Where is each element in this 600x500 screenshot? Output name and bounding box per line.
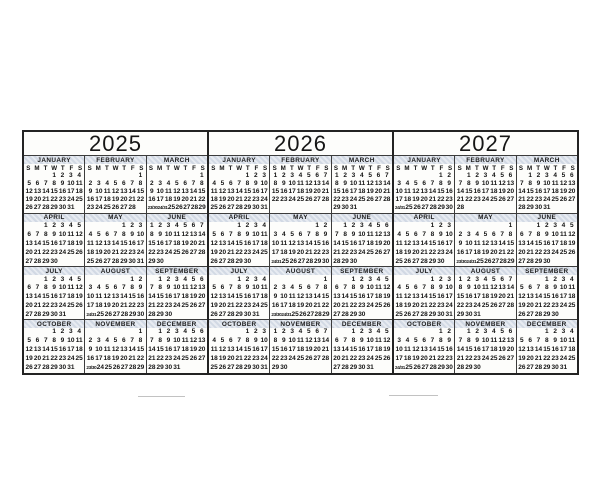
month-name: SEPTEMBER bbox=[517, 267, 577, 275]
week-row: 13141516171819 bbox=[518, 240, 576, 249]
day-cell: 14 bbox=[333, 241, 341, 248]
day-cell: 21 bbox=[506, 294, 514, 301]
day-cell: 2 bbox=[437, 223, 445, 230]
day-cell: 2 bbox=[358, 329, 366, 336]
day-cell: 19 bbox=[218, 356, 226, 363]
weekday-letter: W bbox=[235, 165, 244, 172]
month-name: MARCH bbox=[147, 156, 207, 164]
day-cell: 22 bbox=[428, 303, 436, 310]
day-cell: 3 bbox=[173, 329, 181, 336]
day-cell: 21 bbox=[341, 303, 349, 310]
day-cell: 11 bbox=[164, 189, 172, 196]
week-row: 282930 bbox=[456, 364, 514, 373]
day-cell: 27 bbox=[183, 205, 191, 212]
day-cell: 14 bbox=[227, 241, 235, 248]
day-cell: 4 bbox=[260, 223, 268, 230]
week-row: 293031 bbox=[333, 204, 391, 212]
day-cell: 4 bbox=[103, 338, 111, 345]
weekday-letter: F bbox=[128, 165, 137, 172]
day-cell: 15 bbox=[235, 241, 243, 248]
day-cell: 2 bbox=[86, 181, 94, 188]
weekday-letter: F bbox=[560, 165, 569, 172]
day-cell: 8 bbox=[50, 181, 58, 188]
day-cell: 4 bbox=[296, 329, 304, 336]
day-cell: 19 bbox=[374, 241, 382, 248]
day-cell: 27 bbox=[526, 312, 534, 319]
weekday-letter: S bbox=[517, 165, 526, 172]
day-cell: 4 bbox=[95, 285, 103, 292]
day-cell: 11 bbox=[95, 294, 103, 301]
day-cell: 25 bbox=[210, 205, 218, 212]
day-cell: 11 bbox=[490, 181, 498, 188]
weekday-row: SMTWTFS bbox=[332, 164, 392, 172]
day-cell: 25 bbox=[281, 259, 289, 266]
day-cell: 3 bbox=[395, 338, 403, 345]
day-cell: 6 bbox=[490, 232, 498, 239]
month-name: JULY bbox=[394, 267, 454, 275]
day-cell: 19 bbox=[181, 241, 189, 248]
day-cell: 29 bbox=[465, 365, 473, 372]
week-row: 15161718192021 bbox=[271, 346, 329, 355]
day-cell: 7 bbox=[428, 181, 436, 188]
day-cell: 1 bbox=[136, 173, 144, 180]
day-cell: 22 bbox=[42, 303, 50, 310]
day-cell: 13 bbox=[120, 189, 128, 196]
day-cell: 1 bbox=[543, 329, 551, 336]
day-cell: 26 bbox=[484, 259, 492, 266]
day-cell: 9 bbox=[543, 232, 551, 239]
day-cell: 23 bbox=[445, 197, 453, 204]
weekday-letter: T bbox=[58, 165, 67, 172]
day-cell: 9 bbox=[445, 338, 453, 345]
day-cell: 7 bbox=[498, 232, 506, 239]
day-cell: 26 bbox=[25, 365, 33, 372]
week-row: 567891011 bbox=[518, 337, 576, 346]
day-cell: 25 bbox=[67, 303, 75, 310]
day-cell: 21 bbox=[383, 189, 391, 196]
day-cell: 17 bbox=[260, 347, 268, 354]
day-cell: 26 bbox=[413, 205, 421, 212]
day-cell: 28 bbox=[42, 205, 50, 212]
day-cell: 29 bbox=[271, 365, 279, 372]
day-cell: 29 bbox=[156, 312, 164, 319]
weeks: 1234567891011121314151617181920212223242… bbox=[394, 275, 454, 319]
day-cell: 17 bbox=[164, 241, 172, 248]
week-row: 19202122232425 bbox=[518, 302, 576, 311]
day-cell: 29 bbox=[333, 205, 341, 212]
month-name: SEPTEMBER bbox=[147, 267, 207, 275]
day-cell: 10 bbox=[366, 285, 374, 292]
week-row: 16171819202122 bbox=[271, 302, 329, 311]
week-row: 891011121314 bbox=[271, 337, 329, 346]
day-cell: 6 bbox=[25, 232, 33, 239]
month-name: AUGUST bbox=[85, 267, 145, 275]
day-cell: 5 bbox=[210, 232, 218, 239]
day-cell: 16 bbox=[551, 294, 559, 301]
day-cell: 18 bbox=[358, 189, 366, 196]
weekday-letter: M bbox=[94, 165, 103, 172]
day-cell: 11 bbox=[403, 347, 411, 354]
day-cell: 7 bbox=[189, 181, 197, 188]
week-row: 16171819202122 bbox=[148, 196, 206, 204]
week-row: 10111213141516 bbox=[395, 346, 453, 355]
day-cell: 10 bbox=[445, 285, 453, 292]
weekday-row: SMTWTFS bbox=[209, 164, 269, 172]
day-cell: 24/31 bbox=[395, 206, 405, 211]
week-row: 11121314151617 bbox=[210, 346, 268, 355]
day-cell: 14 bbox=[518, 189, 526, 196]
day-cell: 5 bbox=[481, 232, 489, 239]
month-march-2026: MARCH SMTWTFS 12345678910111213141516171… bbox=[332, 156, 392, 213]
day-cell: 27 bbox=[526, 365, 534, 372]
month-november-2027: NOVEMBER 1234567891011121314151617181920… bbox=[455, 320, 515, 373]
day-cell: 5 bbox=[218, 181, 226, 188]
day-cell: 4 bbox=[181, 277, 189, 284]
day-cell: 4 bbox=[260, 277, 268, 284]
day-cell: 25 bbox=[405, 365, 413, 372]
day-cell: 16 bbox=[551, 347, 559, 354]
day-cell: 19 bbox=[383, 294, 391, 301]
day-cell: 12 bbox=[189, 285, 197, 292]
day-cell: 18 bbox=[551, 189, 559, 196]
day-cell: 4 bbox=[490, 329, 498, 336]
day-cell: 4 bbox=[67, 223, 75, 230]
weeks: 1234567891011121314151617181920212223242… bbox=[85, 172, 145, 213]
day-cell: 3 bbox=[95, 181, 103, 188]
day-cell: 19 bbox=[383, 347, 391, 354]
day-cell: 14 bbox=[42, 189, 50, 196]
weekday-letter: T bbox=[120, 165, 129, 172]
day-cell: 26 bbox=[518, 365, 526, 372]
week-row: 9101112131415 bbox=[271, 293, 329, 302]
day-cell: 21 bbox=[456, 197, 464, 204]
week-row: 567891011 bbox=[210, 231, 268, 240]
day-cell: 31 bbox=[67, 365, 75, 372]
day-cell: 15 bbox=[120, 241, 128, 248]
day-cell: 30 bbox=[551, 365, 559, 372]
day-cell: 18 bbox=[173, 241, 181, 248]
day-cell: 2 bbox=[358, 277, 366, 284]
day-cell: 20 bbox=[33, 356, 41, 363]
day-cell: 19 bbox=[518, 303, 526, 310]
day-cell: 16 bbox=[50, 241, 58, 248]
day-cell: 20 bbox=[420, 197, 428, 204]
day-cell: 12 bbox=[374, 232, 382, 239]
day-cell: 22 bbox=[437, 356, 445, 363]
day-cell: 8 bbox=[148, 232, 156, 239]
day-cell: 25 bbox=[395, 259, 403, 266]
day-cell: 27 bbox=[227, 205, 235, 212]
day-cell: 4 bbox=[164, 181, 172, 188]
day-cell: 17 bbox=[173, 294, 181, 301]
day-cell: 12 bbox=[103, 294, 111, 301]
day-cell: 4 bbox=[75, 329, 83, 336]
weekday-row: SMTWTFS bbox=[394, 164, 454, 172]
day-cell: 25 bbox=[75, 356, 83, 363]
day-cell: 28 bbox=[341, 365, 349, 372]
week-row: 262728293031 bbox=[518, 364, 576, 373]
week-row: 12 bbox=[86, 275, 144, 284]
day-cell: 24 bbox=[445, 303, 453, 310]
week-row: 2345678 bbox=[148, 180, 206, 188]
weekday-letter: T bbox=[181, 165, 190, 172]
day-cell: 6 bbox=[120, 181, 128, 188]
day-cell: 28 bbox=[456, 205, 464, 212]
day-cell: 8 bbox=[156, 338, 164, 345]
day-cell: 17 bbox=[260, 189, 268, 196]
day-cell: 26 bbox=[383, 356, 391, 363]
day-cell: 21 bbox=[128, 356, 136, 363]
week-row: 2728293031 bbox=[333, 364, 391, 373]
day-cell: 23 bbox=[86, 205, 94, 212]
month-name: JUNE bbox=[517, 214, 577, 222]
day-cell: 10 bbox=[260, 338, 268, 345]
day-cell: 6 bbox=[25, 285, 33, 292]
day-cell: 30 bbox=[445, 205, 453, 212]
month-name: FEBRUARY bbox=[270, 156, 330, 164]
day-cell: 28 bbox=[305, 259, 313, 266]
day-cell: 25 bbox=[568, 356, 576, 363]
day-cell: 6 bbox=[313, 173, 321, 180]
day-cell: 14 bbox=[111, 241, 119, 248]
week-row: 3456789 bbox=[395, 337, 453, 346]
day-cell: 9 bbox=[358, 338, 366, 345]
day-cell: 5 bbox=[559, 173, 567, 180]
day-cell: 10 bbox=[95, 347, 103, 354]
day-cell: 21 bbox=[198, 241, 206, 248]
day-cell: 10 bbox=[58, 232, 66, 239]
day-cell: 4 bbox=[103, 181, 111, 188]
day-cell: 11 bbox=[358, 181, 366, 188]
day-cell: 26 bbox=[175, 205, 183, 212]
day-cell: 10 bbox=[86, 294, 94, 301]
day-cell: 21 bbox=[333, 250, 341, 257]
week-row: 12345 bbox=[25, 222, 83, 231]
weekday-letter: T bbox=[349, 165, 358, 172]
day-cell: 3 bbox=[58, 223, 66, 230]
week-row: 14151617181920 bbox=[148, 293, 206, 302]
day-cell: 24 bbox=[260, 356, 268, 363]
day-cell: 28 bbox=[321, 197, 329, 204]
day-cell: 9 bbox=[551, 285, 559, 292]
day-cell: 19 bbox=[25, 197, 33, 204]
day-cell: 23 bbox=[445, 356, 453, 363]
day-cell: 20 bbox=[412, 250, 420, 257]
day-cell: 1 bbox=[526, 173, 534, 180]
day-cell: 26 bbox=[218, 205, 226, 212]
day-cell: 22 bbox=[148, 250, 156, 257]
day-cell: 3 bbox=[358, 223, 366, 230]
day-cell: 12 bbox=[75, 232, 83, 239]
week-row: 567891011 bbox=[25, 337, 83, 346]
day-cell: 14 bbox=[428, 347, 436, 354]
day-cell: 7 bbox=[128, 181, 136, 188]
day-cell: 12 bbox=[173, 189, 181, 196]
day-cell: 11 bbox=[288, 294, 296, 301]
month-june-2027: JUNE 12345678910111213141516171819202122… bbox=[517, 214, 577, 267]
day-cell: 9 bbox=[164, 285, 172, 292]
day-cell: 26 bbox=[498, 197, 506, 204]
week-row: 2345678 bbox=[456, 231, 514, 240]
day-cell: 17 bbox=[95, 197, 103, 204]
week-row: 22232425262728 bbox=[333, 196, 391, 204]
month-november-2026: NOVEMBER 1234567891011121314151617181920… bbox=[270, 320, 330, 373]
day-cell: 11 bbox=[490, 338, 498, 345]
week-row: 20212223242526 bbox=[25, 302, 83, 311]
day-cell: 2 bbox=[50, 223, 58, 230]
day-cell: 28 bbox=[534, 312, 542, 319]
day-cell: 14 bbox=[498, 241, 506, 248]
day-cell: 30 bbox=[137, 312, 145, 319]
day-cell: 23 bbox=[136, 303, 144, 310]
week-row: 18192021222324 bbox=[86, 248, 144, 257]
weeks: 1234567891011121314151617181920212223/30… bbox=[85, 328, 145, 373]
day-cell: 7 bbox=[420, 232, 428, 239]
day-cell: 18 bbox=[395, 303, 403, 310]
week-row: 123456 bbox=[148, 328, 206, 337]
weeks: 1234567891011121314151617181920212223242… bbox=[147, 275, 207, 319]
day-cell: 17 bbox=[395, 356, 403, 363]
day-cell: 26 bbox=[189, 303, 197, 310]
month-february-2026: FEBRUARY SMTWTFS 12345678910111213141516… bbox=[270, 156, 330, 213]
day-cell: 2 bbox=[148, 181, 156, 188]
day-cell: 21 bbox=[235, 197, 243, 204]
day-cell: 26 bbox=[305, 197, 313, 204]
day-cell: 9 bbox=[473, 338, 481, 345]
month-december-2025: DECEMBER 1234567891011121314151617181920… bbox=[147, 320, 207, 373]
day-cell: 1 bbox=[42, 223, 50, 230]
day-cell: 10 bbox=[395, 347, 403, 354]
day-cell: 29 bbox=[437, 365, 445, 372]
month-name: APRIL bbox=[209, 214, 269, 222]
day-cell: 6 bbox=[305, 285, 313, 292]
day-cell: 10 bbox=[358, 232, 366, 239]
week-row: 28 bbox=[456, 204, 514, 212]
day-cell: 14 bbox=[506, 285, 514, 292]
day-cell: 29 bbox=[50, 365, 58, 372]
day-cell: 8 bbox=[156, 285, 164, 292]
day-cell: 24 bbox=[260, 197, 268, 204]
day-cell: 21 bbox=[189, 197, 197, 204]
day-cell: 16 bbox=[473, 189, 481, 196]
day-cell: 6 bbox=[198, 277, 206, 284]
weekday-letter: T bbox=[551, 165, 560, 172]
week-row: 3456789 bbox=[395, 180, 453, 188]
weeks: 1234567891011121314151617181920212223242… bbox=[24, 222, 84, 267]
day-cell: 29 bbox=[507, 259, 515, 266]
day-cell: 19 bbox=[288, 250, 296, 257]
day-cell: 27 bbox=[25, 312, 33, 319]
day-cell: 2 bbox=[243, 277, 251, 284]
day-cell: 11 bbox=[481, 285, 489, 292]
day-cell: 26 bbox=[366, 197, 374, 204]
weeks: 1234567891011121314151617181920212223242… bbox=[24, 275, 84, 319]
day-cell: 20 bbox=[568, 189, 576, 196]
day-cell: 18 bbox=[288, 303, 296, 310]
week-row: 78910111213 bbox=[148, 337, 206, 346]
day-cell: 22 bbox=[243, 197, 251, 204]
day-cell: 10 bbox=[473, 285, 481, 292]
day-cell: 11 bbox=[559, 232, 567, 239]
day-cell: 27 bbox=[313, 356, 321, 363]
week-row: 21222324252627 bbox=[518, 196, 576, 204]
day-cell: 30 bbox=[473, 365, 481, 372]
day-cell: 8 bbox=[271, 181, 279, 188]
day-cell: 23 bbox=[534, 197, 542, 204]
week-row: 23/3024/312526272829 bbox=[271, 310, 329, 319]
month-name: DECEMBER bbox=[332, 320, 392, 328]
week-row: 12131415161718 bbox=[518, 346, 576, 355]
day-cell: 27 bbox=[33, 205, 41, 212]
day-cell: 8 bbox=[42, 232, 50, 239]
day-cell: 30 bbox=[534, 205, 542, 212]
day-cell: 4 bbox=[395, 285, 403, 292]
day-cell: 23 bbox=[437, 303, 445, 310]
day-cell: 12 bbox=[498, 181, 506, 188]
day-cell: 24/31 bbox=[158, 206, 168, 211]
week-row: 1234567 bbox=[271, 172, 329, 180]
day-cell: 23 bbox=[164, 303, 172, 310]
day-cell: 30 bbox=[358, 365, 366, 372]
day-cell: 28 bbox=[129, 365, 137, 372]
week-row: 123456 bbox=[518, 172, 576, 180]
day-cell: 17 bbox=[445, 294, 453, 301]
day-cell: 2 bbox=[534, 173, 542, 180]
day-cell: 22 bbox=[271, 197, 279, 204]
day-cell: 25 bbox=[374, 356, 382, 363]
day-cell: 28 bbox=[383, 197, 391, 204]
week-row: 20212223242526 bbox=[25, 248, 83, 257]
day-cell: 10 bbox=[481, 181, 489, 188]
weekday-letter: W bbox=[543, 165, 552, 172]
day-cell: 7 bbox=[321, 173, 329, 180]
week-row: 123456 bbox=[333, 222, 391, 231]
day-cell: 19 bbox=[173, 197, 181, 204]
day-cell: 20 bbox=[526, 303, 534, 310]
month-name: FEBRUARY bbox=[455, 156, 515, 164]
day-cell: 13 bbox=[120, 347, 128, 354]
day-cell: 27 bbox=[333, 365, 341, 372]
day-cell: 27 bbox=[421, 365, 429, 372]
day-cell: 5 bbox=[75, 277, 83, 284]
day-cell: 5 bbox=[189, 329, 197, 336]
day-cell: 11 bbox=[473, 241, 481, 248]
day-cell: 7 bbox=[128, 338, 136, 345]
day-cell: 12 bbox=[366, 181, 374, 188]
day-cell: 9 bbox=[534, 181, 542, 188]
day-cell: 19 bbox=[498, 189, 506, 196]
weeks: 1234567891011121314151617181920212223242… bbox=[455, 328, 515, 373]
day-cell: 31 bbox=[173, 365, 181, 372]
day-cell: 14 bbox=[420, 241, 428, 248]
week-row: 123456 bbox=[456, 328, 514, 337]
day-cell: 29 bbox=[543, 312, 551, 319]
day-cell: 13 bbox=[333, 347, 341, 354]
day-cell: 30 bbox=[437, 259, 445, 266]
day-cell: 1 bbox=[543, 277, 551, 284]
day-cell: 7 bbox=[33, 285, 41, 292]
day-cell: 23/30 bbox=[86, 366, 96, 371]
day-cell: 30 bbox=[280, 365, 288, 372]
weekday-row: SMTWTFS bbox=[24, 164, 84, 172]
day-cell: 30 bbox=[358, 312, 366, 319]
day-cell: 8 bbox=[543, 285, 551, 292]
day-cell: 6 bbox=[189, 223, 197, 230]
day-cell: 6 bbox=[333, 285, 341, 292]
week-row: 18192021222324 bbox=[395, 302, 453, 311]
day-cell: 18 bbox=[374, 294, 382, 301]
day-cell: 26 bbox=[210, 312, 218, 319]
